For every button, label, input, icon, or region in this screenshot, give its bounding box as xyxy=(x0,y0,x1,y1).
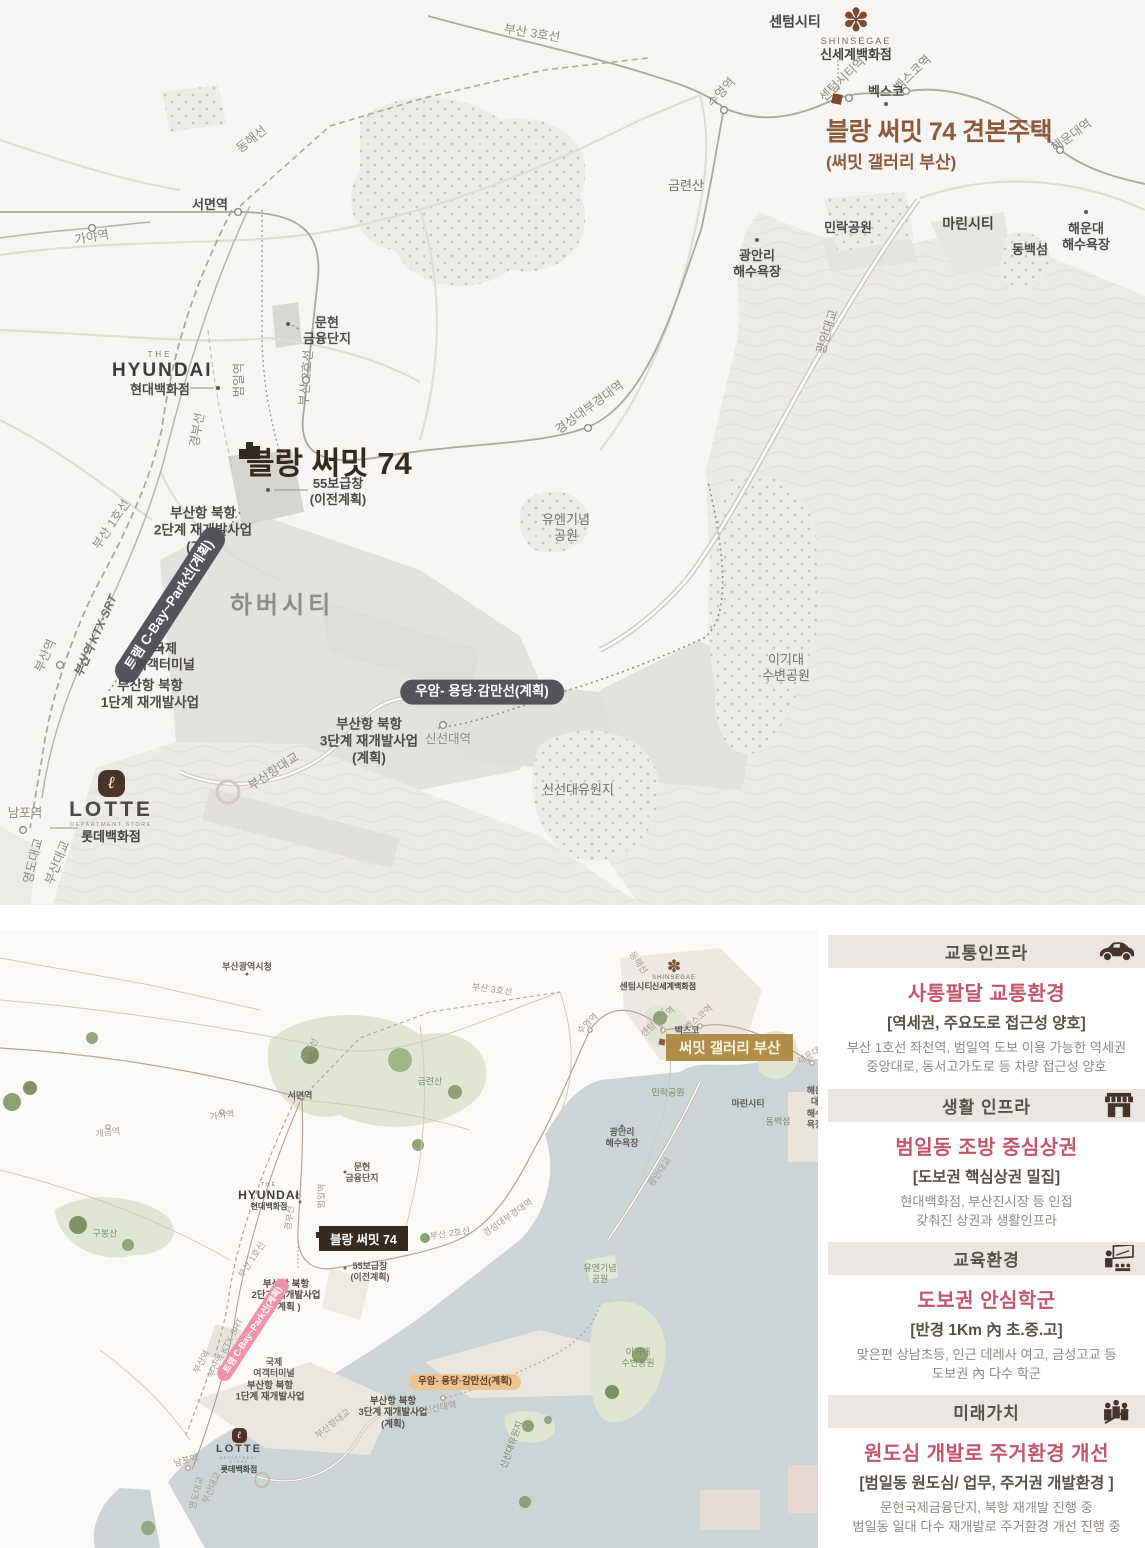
shinsegae-logo-mini: ✽ SHINSEGAE 신세계백화점 xyxy=(645,958,703,992)
education-icon xyxy=(1103,1245,1135,1277)
lotte-en-label: LOTTE xyxy=(68,797,154,822)
shinsegae-kr-label: 신세계백화점 xyxy=(645,982,703,992)
panel-header-label: 교통인프라 xyxy=(945,939,1028,964)
panel-title: 사통팔달 교통환경 xyxy=(828,977,1145,1006)
shinsegae-kr-label: 신세계백화점 xyxy=(820,47,892,63)
panel-body: 맞은편 상남초등, 인근 데레사 여고, 금성고교 등 도보권 內 다수 학군 xyxy=(828,1345,1145,1383)
hyundai-en-label: HYUNDAI xyxy=(238,1188,300,1202)
summit-title: 블랑 써밋 74 xyxy=(246,438,412,483)
lotte-en-label: LOTTE xyxy=(212,1443,266,1456)
panel-header: 미래가치 xyxy=(828,1395,1145,1428)
panel-subtitle: [반경 1Km 內 초.중.고] xyxy=(828,1318,1145,1340)
sea-layer xyxy=(94,1058,835,1548)
bottom-map: ✽ SHINSEGAE 신세계백화점 써밋 갤러리 부산 THE HYUNDAI… xyxy=(0,930,835,1548)
panel-title: 원도심 개발로 주거환경 개선 xyxy=(828,1437,1145,1466)
car-icon xyxy=(1097,938,1135,969)
model-house-subtitle: (써밋 갤러리 부산) xyxy=(826,148,1052,173)
bottom-map-graphics xyxy=(0,930,835,1548)
hyundai-kr-label: 현대백화점 xyxy=(238,1202,300,1212)
shinsegae-logo: ✽ SHINSEGAE 신세계백화점 xyxy=(820,4,892,62)
hyundai-logo-mini: THE HYUNDAI 현대백화점 xyxy=(238,1182,300,1212)
panel-body: 문현국제금융단지, 북항 재개발 진행 중 범일동 일대 다수 재개발로 주거환… xyxy=(828,1498,1145,1536)
lotte-mark-icon: ℓ xyxy=(98,770,125,797)
shinsegae-en-label: SHINSEGAE xyxy=(820,36,892,47)
model-house-title: 블랑 써밋 74 견본주택 xyxy=(826,112,1052,148)
panel-living: 생활 인프라 범일동 조방 중심상권 [도보권 핵심상권 밀집] 현대백화점, … xyxy=(828,1089,1145,1230)
panel-subtitle: [도보권 핵심상권 밀집] xyxy=(828,1165,1145,1187)
store-icon xyxy=(1103,1092,1135,1124)
lotte-sub-label: DEPARTMENT STORE xyxy=(68,822,154,829)
hyundai-en-label: HYUNDAI xyxy=(112,360,208,383)
summit-title-block: 블랑 써밋 74 xyxy=(238,438,412,483)
panel-body: 현대백화점, 부산진시장 등 인접 갖춰진 상권과 생활인프라 xyxy=(828,1192,1145,1230)
model-house-callout: 블랑 써밋 74 견본주택 (써밋 갤러리 부산) xyxy=(826,112,1052,173)
summit-gallery-pill: 써밋 갤러리 부산 xyxy=(666,1034,793,1061)
panel-traffic: 교통인프라 사통팔달 교통환경 [역세권, 주요도로 접근성 양호] 부산 1호… xyxy=(828,935,1145,1076)
location-map-page: ✽ SHINSEGAE 신세계백화점 블랑 써밋 74 견본주택 (써밋 갤러리… xyxy=(0,0,1145,1548)
panel-header: 교통인프라 xyxy=(828,935,1145,968)
panel-subtitle: [범일동 원도심/ 업무, 주거권 개발환경 ] xyxy=(828,1471,1145,1493)
panel-subtitle: [역세권, 주요도로 접근성 양호] xyxy=(828,1011,1145,1033)
panel-header: 생활 인프라 xyxy=(828,1089,1145,1122)
hyundai-kr-label: 현대백화점 xyxy=(112,382,208,398)
panel-education: 교육환경 도보권 안심학군 [반경 1Km 內 초.중.고] 맞은편 상남초등,… xyxy=(828,1242,1145,1383)
panel-title: 도보권 안심학군 xyxy=(828,1284,1145,1313)
lotte-logo: ℓ LOTTE DEPARTMENT STORE 롯데백화점 xyxy=(68,770,154,844)
lotte-logo-mini: ℓ LOTTE DEPARTMENT STORE 롯데백화점 xyxy=(212,1428,266,1474)
panel-title: 범일동 조방 중심상권 xyxy=(828,1131,1145,1160)
hyundai-logo: THE HYUNDAI 현대백화점 xyxy=(112,350,208,398)
top-map: ✽ SHINSEGAE 신세계백화점 블랑 써밋 74 견본주택 (써밋 갤러리… xyxy=(0,0,1145,905)
panel-header: 교육환경 xyxy=(828,1242,1145,1275)
panel-future: 미래가치 원도심 개발로 주거환경 개선 [범일동 원도심/ 업무, 주거권 개… xyxy=(828,1395,1145,1536)
growth-icon xyxy=(1101,1398,1135,1429)
lotte-mark-icon: ℓ xyxy=(232,1428,247,1443)
shinsegae-flower-icon: ✽ xyxy=(820,4,892,36)
summit-pill-block: 블랑 써밋 74 xyxy=(316,1226,408,1251)
hyundai-the-label: THE xyxy=(112,350,208,360)
panel-header-label: 미래가치 xyxy=(953,1399,1020,1424)
lotte-kr-label: 롯데백화점 xyxy=(212,1465,266,1475)
lotte-sub-label: DEPARTMENT STORE xyxy=(212,1456,266,1464)
panel-header-label: 생활 인프라 xyxy=(942,1093,1031,1118)
panel-header-label: 교육환경 xyxy=(953,1246,1020,1271)
shinsegae-flower-icon: ✽ xyxy=(645,958,703,975)
panel-body: 부산 1호선 좌천역, 범일역 도보 이용 가능한 역세권 중앙대로, 동서고가… xyxy=(828,1038,1145,1076)
summit-pill: 블랑 써밋 74 xyxy=(319,1226,408,1251)
lotte-kr-label: 롯데백화점 xyxy=(68,829,154,845)
